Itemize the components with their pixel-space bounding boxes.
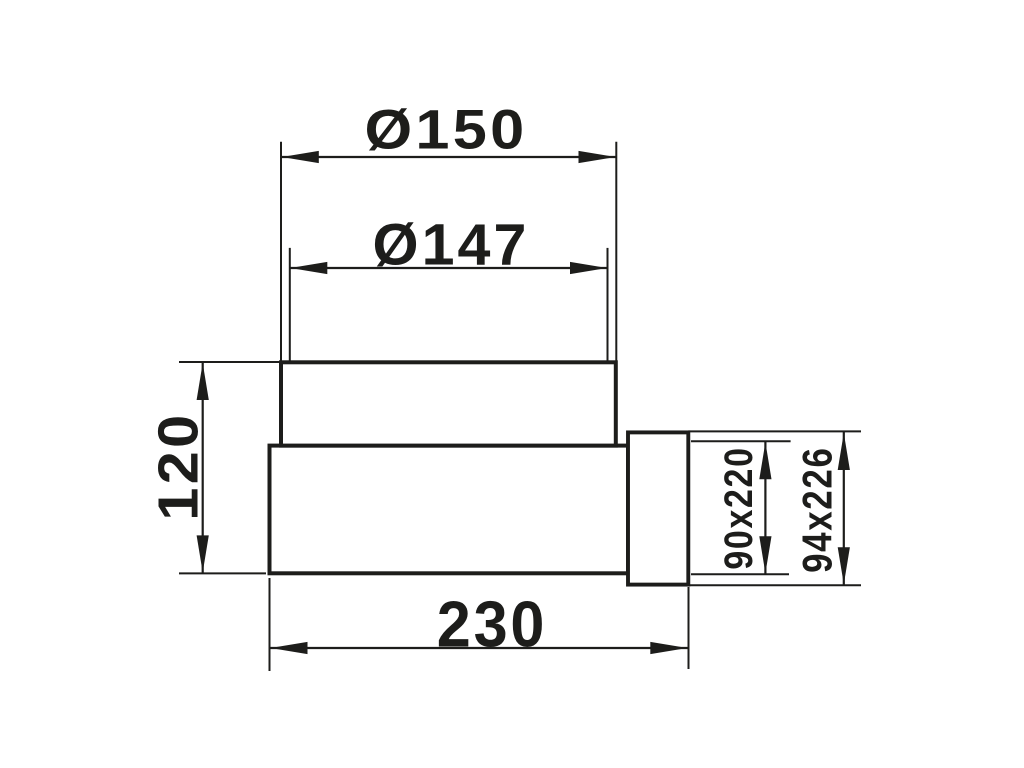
svg-text:230: 230 — [437, 588, 548, 661]
svg-text:120: 120 — [147, 412, 210, 521]
svg-text:90x220: 90x220 — [717, 446, 761, 569]
svg-text:Ø147: Ø147 — [373, 212, 530, 277]
svg-text:94x226: 94x226 — [793, 447, 840, 573]
svg-text:Ø150: Ø150 — [365, 98, 528, 161]
